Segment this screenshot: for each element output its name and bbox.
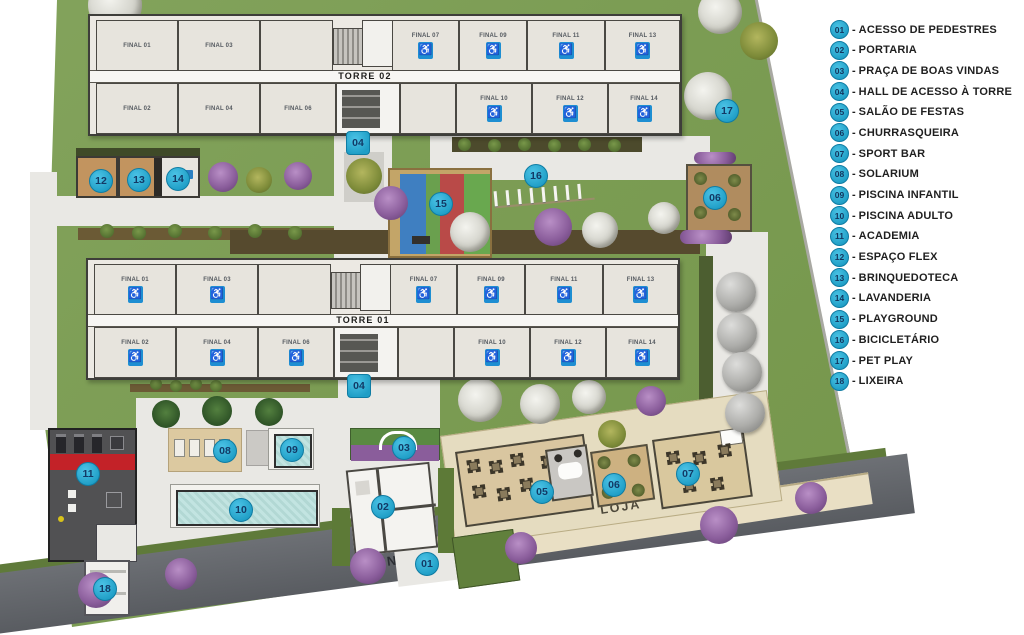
- plan-badge-04: 04: [347, 374, 371, 398]
- legend-badge: 08: [830, 165, 849, 184]
- legend-item: 08-SOLARIUM: [830, 168, 1024, 181]
- unit-room: FINAL 09♿: [459, 20, 527, 71]
- legend-label: BRINQUEDOTECA: [859, 272, 959, 284]
- unit-room: FINAL 10♿: [456, 83, 532, 134]
- legend-item: 06-CHURRASQUEIRA: [830, 126, 1024, 139]
- plan-badge-10: 10: [229, 498, 253, 522]
- unit-label: FINAL 13: [627, 277, 655, 283]
- plan-badge-14: 14: [166, 167, 190, 191]
- legend-separator: -: [852, 251, 856, 263]
- unit-room: FINAL 09♿: [457, 264, 525, 315]
- unit-room: [398, 327, 454, 378]
- unit-label: FINAL 03: [205, 43, 233, 49]
- unit-room: FINAL 10♿: [454, 327, 530, 378]
- unit-label: FINAL 09: [479, 33, 507, 39]
- accessible-icon: ♿: [210, 349, 225, 366]
- plan-badge-12: 12: [89, 169, 113, 193]
- unit-room: FINAL 04♿: [176, 327, 258, 378]
- legend-badge: 03: [830, 61, 849, 80]
- legend-item: 05-SALÃO DE FESTAS: [830, 106, 1024, 119]
- accessible-icon: ♿: [557, 286, 572, 303]
- legend-badge: 10: [830, 206, 849, 225]
- unit-room: [260, 20, 333, 71]
- stairwell: [333, 28, 363, 65]
- elevator-bank: [342, 90, 380, 128]
- unit-room: FINAL 11♿: [527, 20, 605, 71]
- accessible-icon: ♿: [128, 349, 143, 366]
- elevator-bank: [340, 334, 378, 372]
- legend-badge: 06: [830, 123, 849, 142]
- plan-badge-18: 18: [93, 577, 117, 601]
- unit-label: FINAL 07: [410, 277, 438, 283]
- legend-item: 12-ESPAÇO FLEX: [830, 251, 1024, 264]
- plan-badge-04: 04: [346, 131, 370, 155]
- legend-badge: 05: [830, 103, 849, 122]
- legend-list: 01-ACESSO DE PEDESTRES02-PORTARIA03-PRAÇ…: [830, 23, 1024, 388]
- accessible-icon: ♿: [561, 349, 576, 366]
- unit-label: FINAL 06: [282, 340, 310, 346]
- legend-label: LAVANDERIA: [859, 292, 931, 304]
- legend-separator: -: [852, 375, 856, 387]
- unit-label: FINAL 12: [554, 340, 582, 346]
- legend-label: LIXEIRA: [859, 375, 904, 387]
- legend-separator: -: [852, 355, 856, 367]
- unit-label: FINAL 04: [203, 340, 231, 346]
- legend-badge: 14: [830, 289, 849, 308]
- legend-label: PORTARIA: [859, 44, 917, 56]
- plan-badge-03: 03: [392, 436, 416, 460]
- unit-label: FINAL 06: [284, 106, 312, 112]
- unit-label: FINAL 02: [123, 106, 151, 112]
- unit-label: FINAL 02: [121, 340, 149, 346]
- unit-room: FINAL 13♿: [603, 264, 678, 315]
- unit-label: FINAL 04: [205, 106, 233, 112]
- legend-badge: 11: [830, 227, 849, 246]
- unit-label: FINAL 07: [412, 33, 440, 39]
- legend-label: SOLARIUM: [859, 168, 919, 180]
- unit-label: FINAL 12: [556, 96, 584, 102]
- legend-badge: 09: [830, 186, 849, 205]
- legend-badge: 02: [830, 41, 849, 60]
- accessible-icon: ♿: [563, 105, 578, 122]
- plan-badge-09: 09: [280, 438, 304, 462]
- legend-item: 16-BICICLETÁRIO: [830, 333, 1024, 346]
- legend-separator: -: [852, 168, 856, 180]
- plan-badge-05: 05: [530, 480, 554, 504]
- legend-item: 14-LAVANDERIA: [830, 292, 1024, 305]
- unit-room: FINAL 14♿: [606, 327, 678, 378]
- unit-room: FINAL 02: [96, 83, 178, 134]
- accessible-icon: ♿: [484, 286, 499, 303]
- accessible-icon: ♿: [633, 286, 648, 303]
- accessible-icon: ♿: [210, 286, 225, 303]
- unit-room: FINAL 01♿: [94, 264, 176, 315]
- legend-label: SALÃO DE FESTAS: [859, 106, 964, 118]
- legend-separator: -: [852, 106, 856, 118]
- plan-badge-13: 13: [127, 168, 151, 192]
- legend-separator: -: [852, 334, 856, 346]
- legend-separator: -: [852, 230, 856, 242]
- unit-room: [258, 264, 331, 315]
- legend: 01-ACESSO DE PEDESTRES02-PORTARIA03-PRAÇ…: [830, 23, 1024, 395]
- legend-label: PLAYGROUND: [859, 313, 938, 325]
- legend-item: 07-SPORT BAR: [830, 147, 1024, 160]
- unit-room: FINAL 11♿: [525, 264, 603, 315]
- legend-separator: -: [852, 24, 856, 36]
- legend-label: SPORT BAR: [859, 148, 926, 160]
- legend-separator: -: [852, 210, 856, 222]
- accessible-icon: ♿: [485, 349, 500, 366]
- legend-badge: 17: [830, 351, 849, 370]
- unit-room: FINAL 07♿: [390, 264, 457, 315]
- tower-name: TORRE 02: [305, 71, 425, 81]
- legend-label: PISCINA ADULTO: [859, 210, 953, 222]
- unit-room: FINAL 01: [96, 20, 178, 71]
- legend-separator: -: [852, 86, 856, 98]
- legend-label: HALL DE ACESSO À TORRE: [859, 86, 1012, 98]
- site-plan: AVENIDA PAULA FERREIRA LOJA: [0, 0, 1024, 627]
- unit-room: FINAL 03: [178, 20, 260, 71]
- legend-label: BICICLETÁRIO: [859, 334, 940, 346]
- accessible-icon: ♿: [486, 42, 501, 59]
- plan-badge-06: 06: [703, 186, 727, 210]
- legend-item: 17-PET PLAY: [830, 354, 1024, 367]
- unit-room: FINAL 04: [178, 83, 260, 134]
- legend-separator: -: [852, 148, 856, 160]
- unit-room: [400, 83, 456, 134]
- tower-torre-01: TORRE 01FINAL 01♿FINAL 03♿FINAL 07♿FINAL…: [86, 258, 680, 380]
- legend-item: 15-PLAYGROUND: [830, 313, 1024, 326]
- legend-item: 09-PISCINA INFANTIL: [830, 189, 1024, 202]
- legend-item: 02-PORTARIA: [830, 44, 1024, 57]
- accessible-icon: ♿: [635, 42, 650, 59]
- unit-room: FINAL 03♿: [176, 264, 258, 315]
- legend-badge: 18: [830, 372, 849, 391]
- plan-badge-16: 16: [524, 164, 548, 188]
- accessible-icon: ♿: [637, 105, 652, 122]
- legend-item: 10-PISCINA ADULTO: [830, 209, 1024, 222]
- unit-label: FINAL 14: [628, 340, 656, 346]
- legend-separator: -: [852, 189, 856, 201]
- plan-badge-01: 01: [415, 552, 439, 576]
- legend-label: PISCINA INFANTIL: [859, 189, 959, 201]
- plan-badge-02: 02: [371, 495, 395, 519]
- legend-separator: -: [852, 127, 856, 139]
- legend-label: CHURRASQUEIRA: [859, 127, 959, 139]
- legend-label: ACADEMIA: [859, 230, 920, 242]
- unit-label: FINAL 14: [630, 96, 658, 102]
- legend-badge: 16: [830, 330, 849, 349]
- legend-item: 18-LIXEIRA: [830, 375, 1024, 388]
- plan-badge-06: 06: [602, 473, 626, 497]
- accessible-icon: ♿: [418, 42, 433, 59]
- legend-badge: 13: [830, 268, 849, 287]
- unit-label: FINAL 13: [629, 33, 657, 39]
- legend-badge: 01: [830, 20, 849, 39]
- accessible-icon: ♿: [487, 105, 502, 122]
- tower-torre-02: TORRE 02FINAL 01FINAL 03FINAL 07♿FINAL 0…: [88, 14, 682, 136]
- unit-label: FINAL 01: [121, 277, 149, 283]
- unit-room: FINAL 13♿: [605, 20, 680, 71]
- legend-label: ACESSO DE PEDESTRES: [859, 24, 997, 36]
- tower-name: TORRE 01: [303, 315, 423, 325]
- unit-label: FINAL 09: [477, 277, 505, 283]
- unit-room: FINAL 12♿: [530, 327, 606, 378]
- legend-item: 01-ACESSO DE PEDESTRES: [830, 23, 1024, 36]
- legend-label: PRAÇA DE BOAS VINDAS: [859, 65, 1000, 77]
- accessible-icon: ♿: [559, 42, 574, 59]
- legend-item: 13-BRINQUEDOTECA: [830, 271, 1024, 284]
- plan-badge-08: 08: [213, 439, 237, 463]
- legend-label: PET PLAY: [859, 355, 913, 367]
- plan-badge-15: 15: [429, 192, 453, 216]
- legend-badge: 07: [830, 144, 849, 163]
- unit-room: FINAL 07♿: [392, 20, 459, 71]
- accessible-icon: ♿: [416, 286, 431, 303]
- legend-separator: -: [852, 44, 856, 56]
- legend-item: 04-HALL DE ACESSO À TORRE: [830, 85, 1024, 98]
- legend-separator: -: [852, 272, 856, 284]
- plan-badge-07: 07: [676, 462, 700, 486]
- legend-badge: 15: [830, 310, 849, 329]
- legend-item: 11-ACADEMIA: [830, 230, 1024, 243]
- legend-label: ESPAÇO FLEX: [859, 251, 938, 263]
- legend-item: 03-PRAÇA DE BOAS VINDAS: [830, 64, 1024, 77]
- legend-separator: -: [852, 65, 856, 77]
- stairwell: [331, 272, 361, 309]
- unit-label: FINAL 10: [478, 340, 506, 346]
- unit-label: FINAL 10: [480, 96, 508, 102]
- accessible-icon: ♿: [128, 286, 143, 303]
- plan-badge-17: 17: [715, 99, 739, 123]
- accessible-icon: ♿: [289, 349, 304, 366]
- unit-room: FINAL 14♿: [608, 83, 680, 134]
- legend-badge: 04: [830, 82, 849, 101]
- unit-room: FINAL 06♿: [258, 327, 334, 378]
- unit-room: FINAL 12♿: [532, 83, 608, 134]
- unit-label: FINAL 11: [550, 277, 577, 283]
- legend-separator: -: [852, 292, 856, 304]
- legend-separator: -: [852, 313, 856, 325]
- accessible-icon: ♿: [635, 349, 650, 366]
- legend-badge: 12: [830, 248, 849, 267]
- plan-badge-11: 11: [76, 462, 100, 486]
- unit-label: FINAL 11: [552, 33, 579, 39]
- unit-room: FINAL 06: [260, 83, 336, 134]
- unit-room: FINAL 02♿: [94, 327, 176, 378]
- unit-label: FINAL 01: [123, 43, 151, 49]
- unit-label: FINAL 03: [203, 277, 231, 283]
